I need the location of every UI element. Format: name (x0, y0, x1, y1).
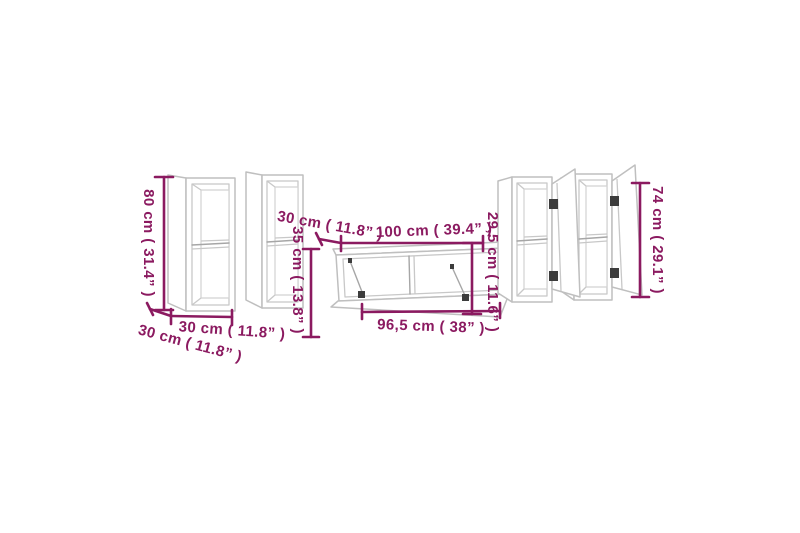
dim-label-left-cabinet-height: 80 cm ( 31.4” ) (139, 173, 157, 313)
furniture-wireframe (0, 0, 800, 533)
flap-bracket-right (462, 294, 469, 301)
cabinet-door-right-2 (610, 165, 642, 295)
dim-label-tv-stand-height: 35 cm ( 13.8” ) (288, 210, 306, 350)
wall-cabinet-left-1 (168, 175, 235, 311)
dim-label-right-cabinet-height: 74 cm ( 29.1” ) (648, 170, 666, 310)
cabinet-door-right-1 (549, 169, 580, 297)
door-hinge-icon (549, 271, 558, 281)
door-hinge-icon (610, 268, 619, 278)
flap-bracket-left (358, 291, 365, 298)
door-hinge-icon (549, 199, 558, 209)
wall-cabinet-right-1 (498, 177, 552, 302)
door-hinge-icon (610, 196, 619, 206)
product-dimension-image: 80 cm ( 31.4” ) 30 cm ( 11.8” ) 30 cm ( … (0, 0, 800, 533)
